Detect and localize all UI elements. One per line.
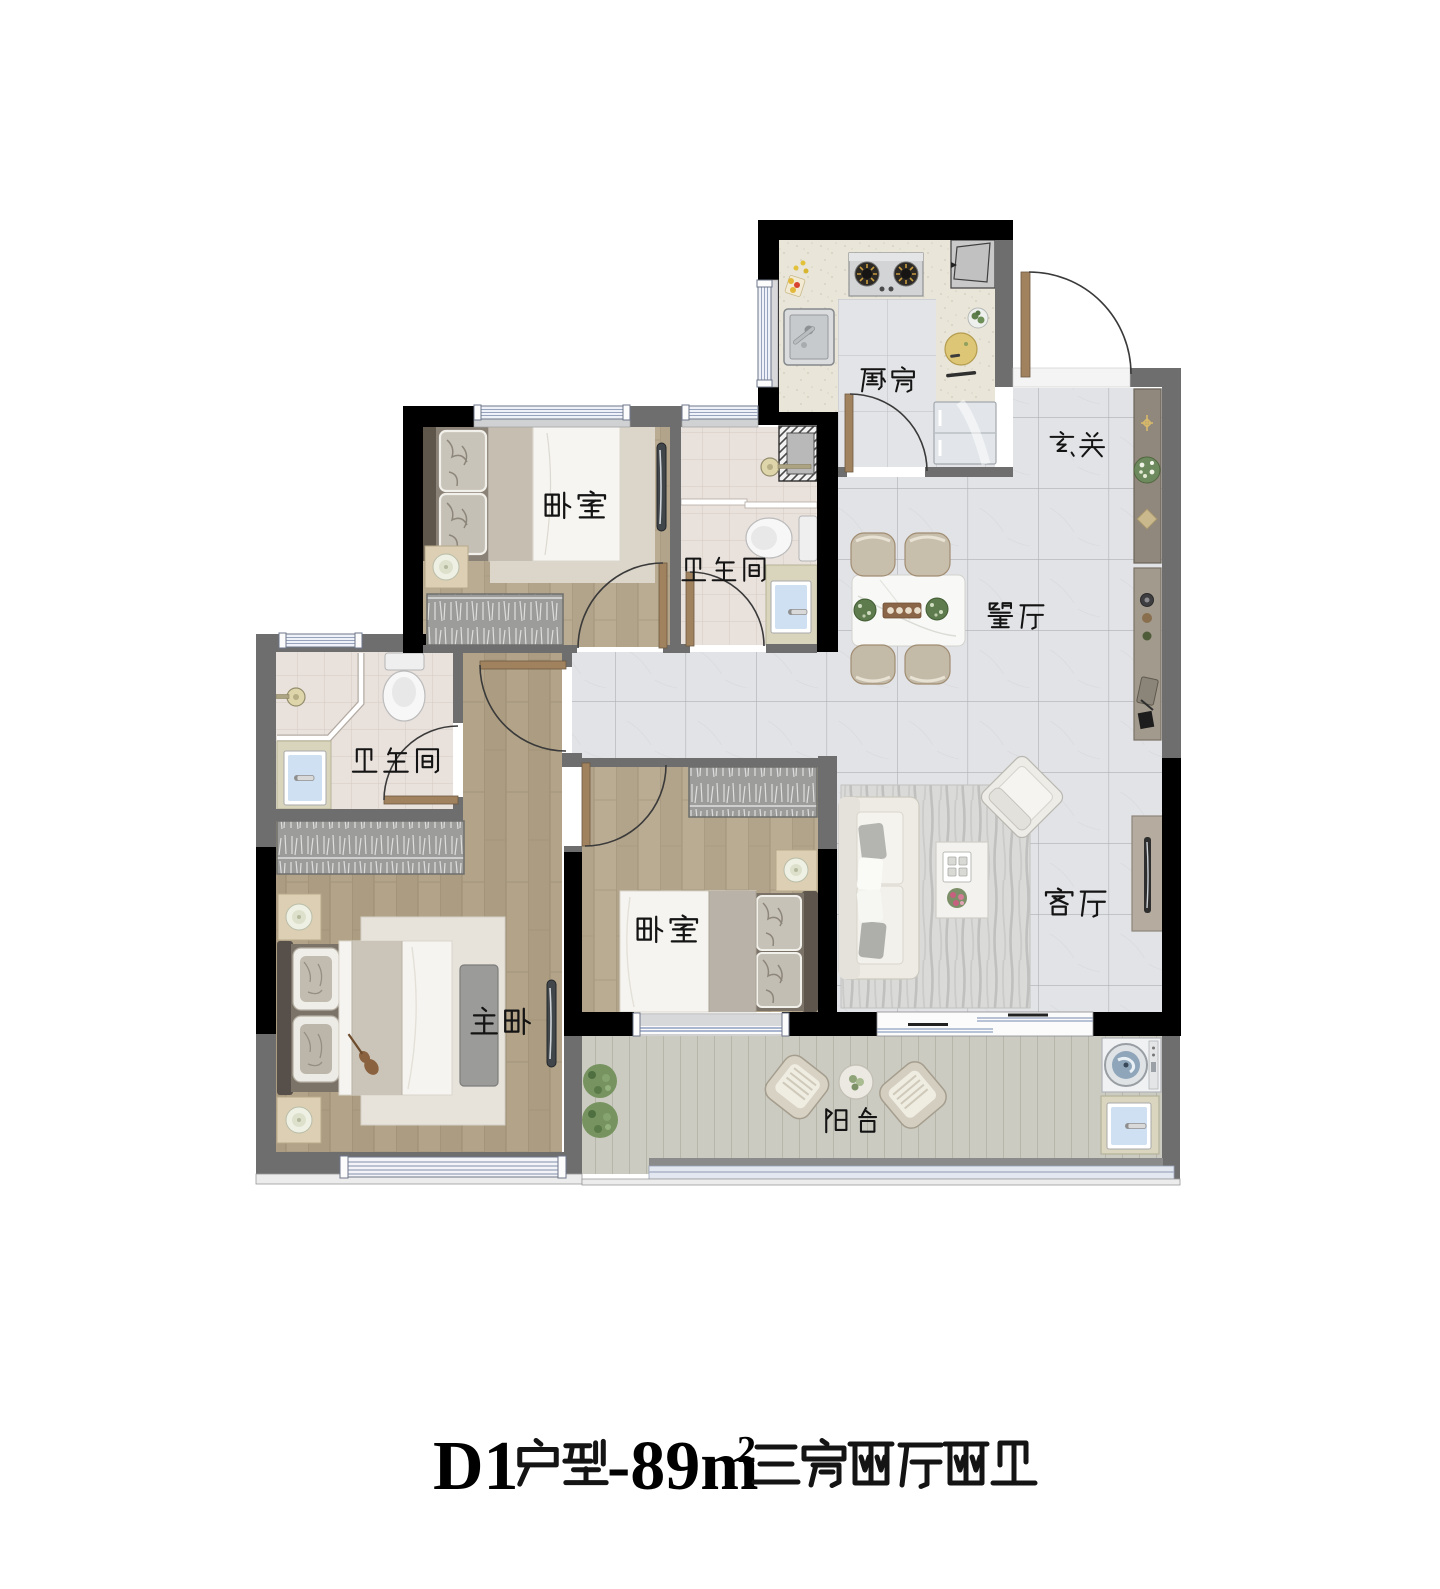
svg-text:2: 2 <box>737 1429 756 1471</box>
svg-text:-89m: -89m <box>607 1428 759 1505</box>
svg-text:D1: D1 <box>433 1428 519 1505</box>
